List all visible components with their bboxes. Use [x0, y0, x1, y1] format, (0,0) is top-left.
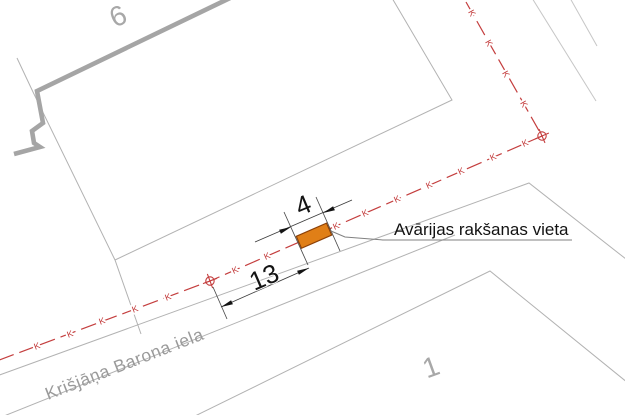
extension-line-manhole — [213, 287, 227, 319]
utility-k-letter: K — [331, 220, 341, 232]
utility-k-letter: K — [163, 291, 172, 302]
utility-k-letter: K — [466, 8, 478, 18]
utility-k-letter: K — [32, 340, 41, 351]
manhole-symbol-north — [532, 126, 552, 146]
parcel-1-number: 1 — [418, 350, 443, 384]
utility-k-letter: K — [500, 69, 512, 79]
utility-k-letter: K — [424, 179, 434, 191]
utility-k-letter: K — [456, 165, 466, 177]
utility-k-letter: K — [230, 264, 240, 276]
utility-k-letter: K — [65, 328, 74, 339]
utility-line-k — [0, 2, 542, 362]
dim-arrow-4-left — [279, 227, 291, 234]
utility-k-letter: K — [97, 315, 106, 326]
utility-k-letter: K — [520, 137, 530, 149]
manhole-symbol-west — [200, 271, 219, 290]
dim-text-4: 4 — [291, 188, 316, 221]
dim-arrow-4-right — [323, 206, 335, 213]
utility-k-letter: K — [392, 193, 402, 205]
utility-k-letter: K — [360, 207, 370, 219]
north-street-east-edge — [532, 0, 596, 101]
utility-k-letter: K — [488, 151, 498, 163]
building-6-number: 6 — [105, 0, 132, 33]
dimensions: 4 13 — [213, 188, 352, 319]
annotation-label: Avārijas rakšanas vieta — [394, 220, 569, 239]
excavation-site-marker — [296, 223, 331, 248]
dim-arrow-13-right — [297, 268, 309, 275]
utility-k-letter: K — [518, 99, 530, 109]
utility-k-letter: K — [483, 38, 495, 48]
site-plan-drawing: KKKKKKKKKKKKKKKKKK 4 13 Avārijas rakšana… — [0, 0, 625, 415]
dim-arrow-13-left — [221, 300, 233, 307]
parcel-boundary-west — [17, 58, 141, 334]
utility-k-letter: K — [130, 303, 139, 314]
north-street-east-edge-2 — [570, 0, 597, 46]
